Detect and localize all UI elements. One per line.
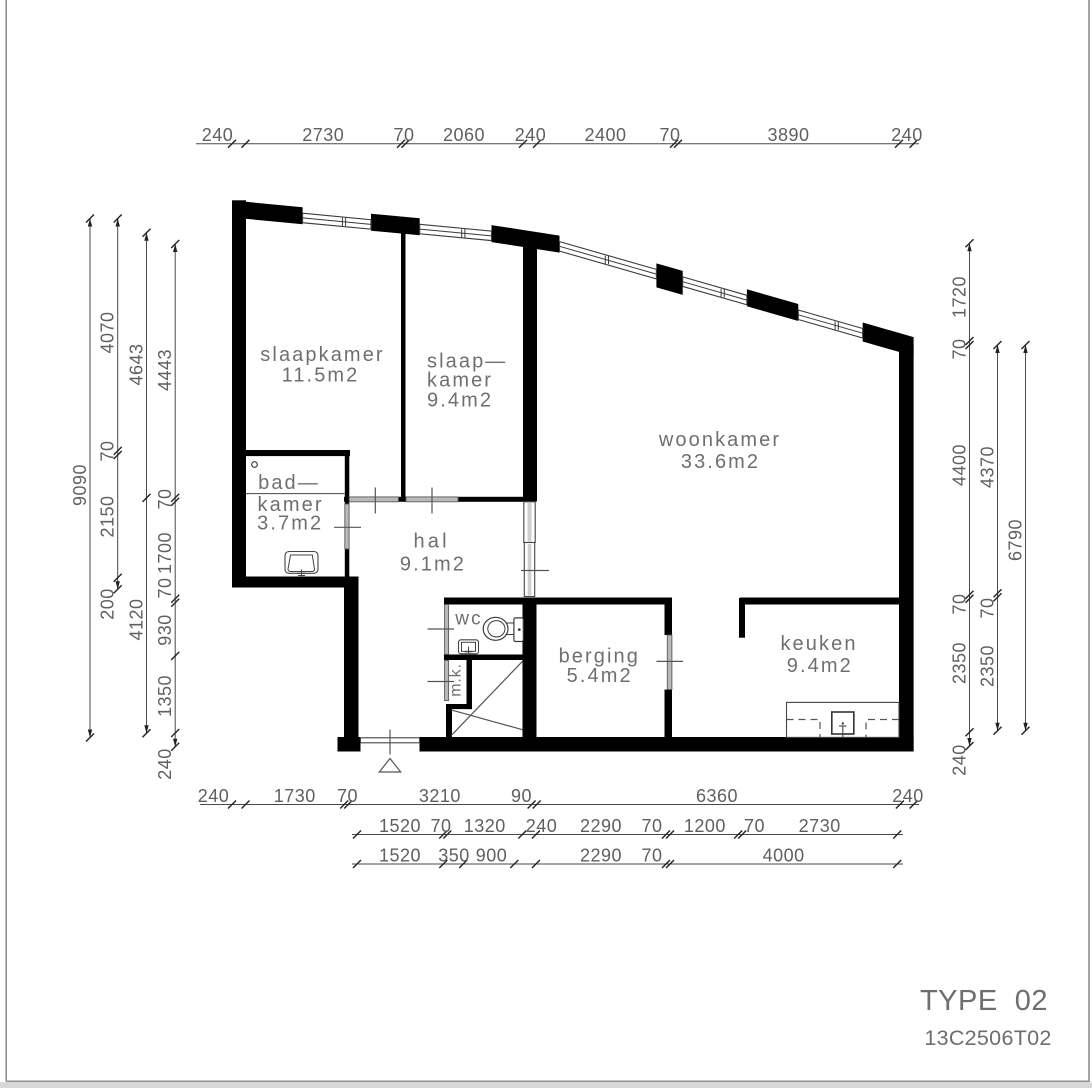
svg-text:4443: 4443 [155,349,175,391]
svg-text:2400: 2400 [584,125,626,145]
svg-text:90: 90 [511,786,532,806]
svg-text:240: 240 [892,786,924,806]
svg-text:240: 240 [950,744,970,776]
svg-text:kamer: kamer [427,370,493,392]
svg-text:TYPE 02: TYPE 02 [920,985,1048,1017]
svg-text:4070: 4070 [98,311,118,353]
svg-text:6790: 6790 [1006,519,1026,561]
svg-text:2350: 2350 [978,645,998,687]
svg-text:4120: 4120 [127,598,147,640]
svg-text:70: 70 [744,816,765,836]
svg-text:1520: 1520 [379,845,421,865]
svg-text:wc: wc [454,609,482,630]
svg-text:70: 70 [393,125,414,145]
svg-text:hal: hal [413,531,449,553]
svg-text:240: 240 [155,748,175,780]
svg-text:keuken: keuken [780,633,857,655]
svg-text:2730: 2730 [302,125,344,145]
svg-text:slaapkamer: slaapkamer [260,344,384,366]
svg-text:1520: 1520 [379,816,421,836]
svg-text:70: 70 [337,786,358,806]
svg-text:240: 240 [202,125,234,145]
svg-text:70: 70 [641,845,662,865]
svg-text:3890: 3890 [767,125,809,145]
svg-text:70: 70 [978,597,998,618]
svg-text:1200: 1200 [684,816,726,836]
svg-text:70: 70 [98,440,118,461]
svg-text:70: 70 [950,338,970,359]
svg-text:33.6m2: 33.6m2 [681,451,760,473]
svg-text:1700: 1700 [155,532,175,574]
svg-text:3210: 3210 [419,786,461,806]
svg-text:930: 930 [155,614,175,646]
svg-text:70: 70 [155,577,175,598]
svg-text:240: 240 [515,125,547,145]
svg-text:70: 70 [659,125,680,145]
svg-text:70: 70 [950,593,970,614]
svg-text:woonkamer: woonkamer [658,429,781,451]
svg-text:13C2506T02: 13C2506T02 [924,1026,1051,1050]
svg-text:4400: 4400 [950,444,970,486]
svg-text:240: 240 [891,125,923,145]
svg-text:2150: 2150 [98,495,118,537]
svg-text:1350: 1350 [155,675,175,717]
svg-text:900: 900 [476,845,508,865]
svg-text:1320: 1320 [464,816,506,836]
svg-text:2060: 2060 [443,125,485,145]
svg-text:70: 70 [641,816,662,836]
svg-text:2350: 2350 [950,642,970,684]
svg-text:2290: 2290 [580,845,622,865]
svg-text:6360: 6360 [696,786,738,806]
svg-text:bad—: bad— [258,472,320,494]
svg-text:240: 240 [526,816,558,836]
svg-text:4643: 4643 [127,343,147,385]
svg-text:2730: 2730 [799,816,841,836]
svg-text:4370: 4370 [978,446,998,488]
svg-text:5.4m2: 5.4m2 [567,665,633,687]
svg-text:240: 240 [198,786,230,806]
svg-text:70: 70 [430,816,451,836]
svg-text:1730: 1730 [274,786,316,806]
svg-text:1720: 1720 [950,276,970,318]
svg-text:2290: 2290 [580,816,622,836]
svg-text:350: 350 [438,845,470,865]
svg-text:m.k.: m.k. [448,663,465,696]
svg-text:9.4m2: 9.4m2 [787,655,853,677]
svg-text:9.4m2: 9.4m2 [427,390,493,412]
svg-text:3.7m2: 3.7m2 [257,513,323,535]
svg-text:11.5m2: 11.5m2 [282,365,360,387]
svg-text:9090: 9090 [70,464,90,506]
svg-text:200: 200 [98,588,118,620]
svg-text:4000: 4000 [763,845,805,865]
svg-text:70: 70 [155,488,175,509]
svg-text:9.1m2: 9.1m2 [400,554,466,576]
